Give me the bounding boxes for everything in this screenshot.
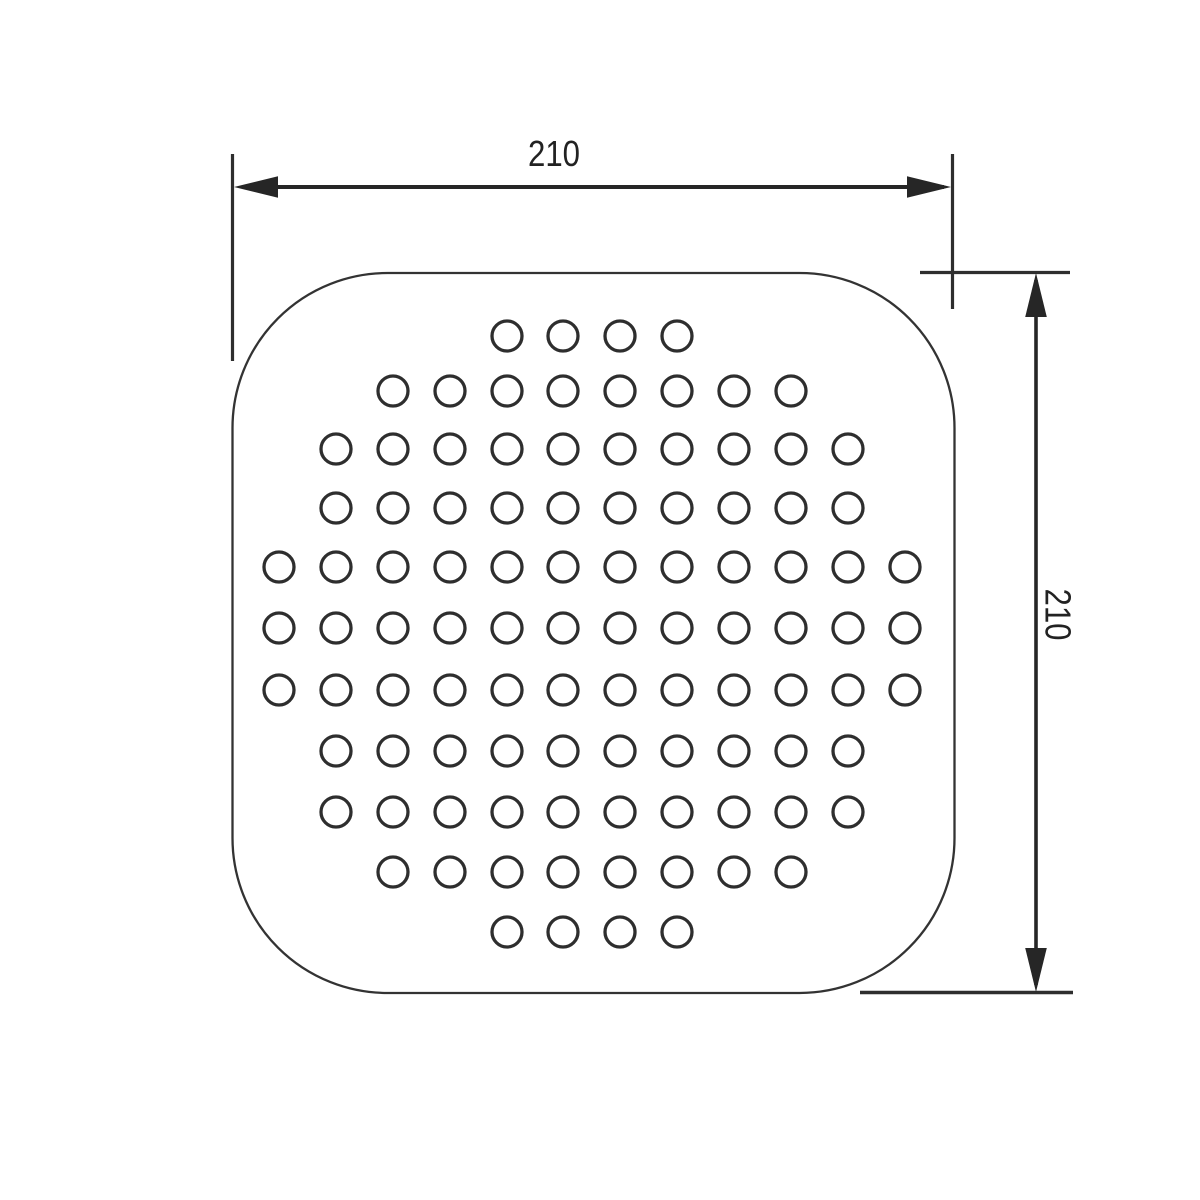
svg-text:210: 210 bbox=[1038, 589, 1079, 641]
svg-text:210: 210 bbox=[528, 133, 580, 174]
